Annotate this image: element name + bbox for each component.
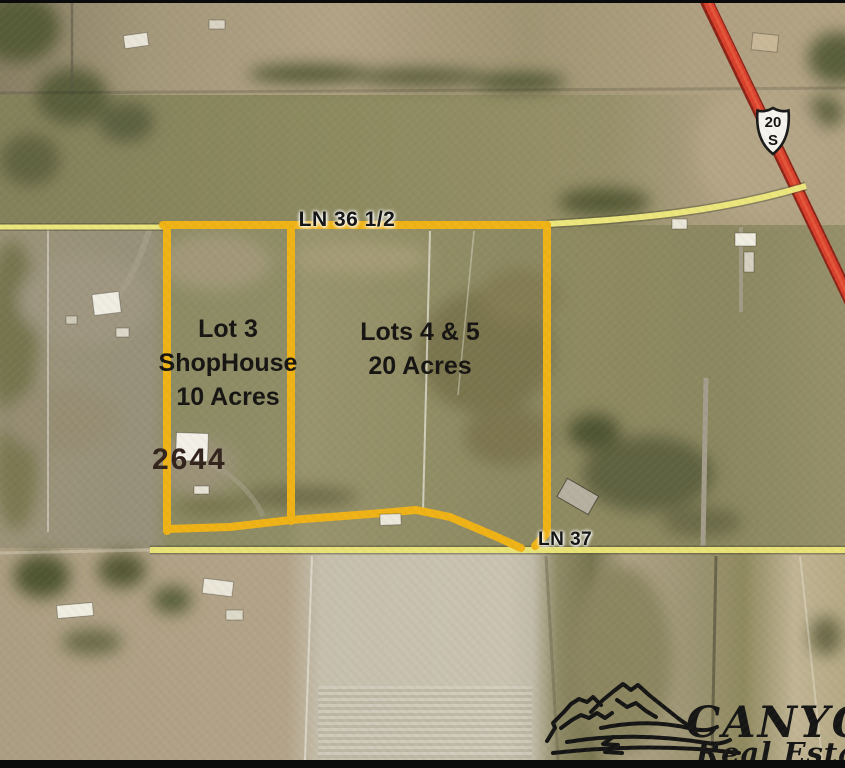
lots45-label: Lots 4 & 5 20 Acres	[330, 315, 510, 383]
canyon-logo: CANYON Real Estate	[538, 680, 845, 768]
route-number: 20	[765, 114, 782, 131]
soil-patch	[464, 406, 552, 466]
tree-cluster	[0, 134, 60, 186]
field-edge	[0, 88, 845, 93]
lot3-label-line3: 10 Acres	[128, 380, 328, 414]
tree-cluster	[14, 554, 70, 598]
building	[226, 610, 243, 620]
bottom-border-bar	[0, 760, 845, 768]
building	[202, 578, 234, 597]
soil-patch	[810, 616, 842, 656]
road-label-ln36half: LN 36 1/2	[262, 208, 432, 232]
tree-cluster	[808, 32, 845, 84]
top-border-bar	[0, 0, 845, 3]
building	[751, 33, 779, 53]
building	[57, 602, 94, 618]
route-direction: S	[768, 132, 778, 149]
field-boundary	[305, 556, 312, 760]
building	[92, 291, 121, 315]
lot3-label: Lot 3 ShopHouse 10 Acres	[128, 312, 328, 414]
tree-cluster	[152, 586, 192, 614]
dirt-patch	[159, 234, 271, 290]
tree-row	[248, 65, 372, 83]
building	[123, 32, 149, 48]
mountain-outline	[617, 700, 656, 717]
lot3-label-line2: ShopHouse	[128, 346, 328, 380]
building	[672, 219, 687, 229]
tree-row	[354, 69, 486, 85]
map-overlay	[0, 0, 845, 768]
route-shield-icon: 20 S	[755, 106, 791, 156]
tree-cluster	[98, 552, 146, 588]
tree-cluster	[98, 102, 154, 142]
highway-route-shield: 20 S	[755, 106, 791, 156]
building	[194, 486, 209, 494]
lots45-label-line1: Lots 4 & 5	[330, 315, 510, 349]
building	[66, 316, 77, 324]
parcel-boundary-south	[167, 510, 521, 548]
lots45-label-line2: 20 Acres	[330, 349, 510, 383]
road-label-ln37: LN 37	[538, 529, 592, 551]
building	[744, 252, 754, 272]
address-number-label: 2644	[152, 443, 227, 477]
tree-cluster	[62, 629, 122, 655]
building	[380, 514, 401, 526]
building	[735, 233, 756, 246]
dirt-patch	[290, 242, 430, 274]
building	[209, 20, 225, 29]
aerial-map: LN 36 1/2 LN 37 Lot 3 ShopHouse 10 Acres…	[0, 0, 845, 768]
tree-cluster	[0, 0, 60, 62]
lot3-label-line1: Lot 3	[128, 312, 328, 346]
tree-cluster	[582, 436, 714, 512]
shrub-row	[174, 497, 250, 515]
tree-cluster	[558, 188, 650, 216]
driveway	[703, 378, 706, 546]
dirt-patch	[4, 386, 120, 454]
